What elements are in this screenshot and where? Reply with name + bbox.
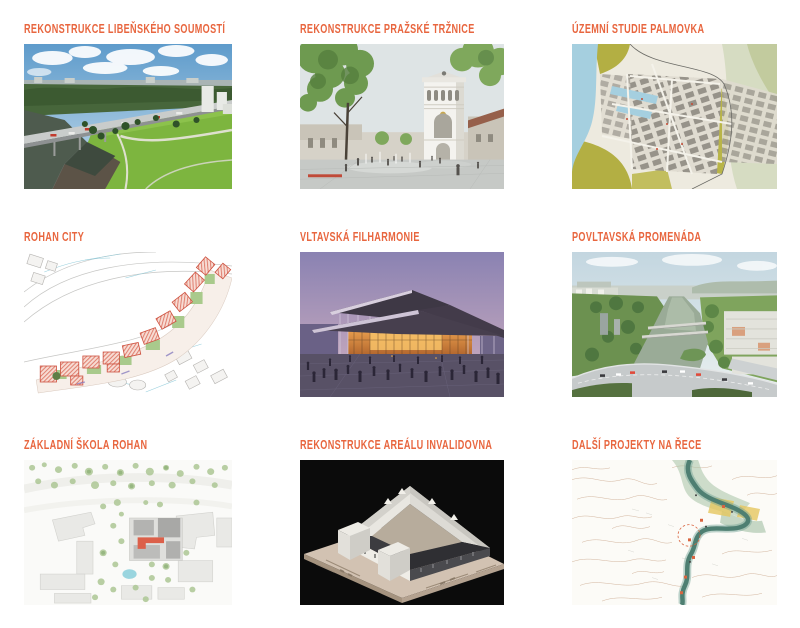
project-title[interactable]: REKONSTRUKCE AREÁLU INVALIDOVNA [300, 437, 443, 452]
river-aerial-photo-graphic [572, 252, 777, 397]
project-image-libenske-soumosti[interactable] [24, 44, 232, 189]
aerial-bridge-photo-graphic [24, 44, 232, 189]
project-card-libenske-soumosti[interactable]: REKONSTRUKCE LIBEŇSKÉHO SOUMOSTÍ [24, 21, 232, 189]
project-image-rohan-city[interactable] [24, 252, 232, 397]
project-card-invalidovna[interactable]: REKONSTRUKCE AREÁLU INVALIDOVNA [300, 437, 504, 605]
project-image-skola-rohan[interactable] [24, 460, 232, 605]
project-image-projekty-na-rece[interactable] [572, 460, 777, 605]
project-card-vltavska-filharmonie[interactable]: VLTAVSKÁ FILHARMONIE [300, 229, 504, 397]
project-card-povltavska-promenada[interactable]: POVLTAVSKÁ PROMENÁDA [572, 229, 777, 397]
school-site-plan-graphic [24, 460, 232, 605]
project-title[interactable]: REKONSTRUKCE LIBEŇSKÉHO SOUMOSTÍ [24, 21, 170, 36]
project-card-prazska-trznice[interactable]: REKONSTRUKCE PRAŽSKÉ TRŽNICE [300, 21, 504, 189]
project-card-rohan-city[interactable]: ROHAN CITY [24, 229, 232, 397]
philharmonic-dusk-render-graphic [300, 252, 504, 397]
invalidovna-model-graphic [300, 460, 504, 605]
rohan-city-masterplan-graphic [24, 252, 232, 397]
project-card-dalsi-projekty-na-rece[interactable]: DALŠÍ PROJEKTY NA ŘECE [572, 437, 777, 605]
project-image-invalidovna[interactable] [300, 460, 504, 605]
palmovka-urban-map-graphic [572, 44, 777, 189]
river-contour-map-graphic [572, 460, 777, 605]
project-title[interactable]: ZÁKLADNÍ ŠKOLA ROHAN [24, 437, 170, 452]
project-title[interactable]: POVLTAVSKÁ PROMENÁDA [572, 229, 716, 244]
project-image-filharmonie[interactable] [300, 252, 504, 397]
project-card-zakladni-skola-rohan[interactable]: ZÁKLADNÍ ŠKOLA ROHAN [24, 437, 232, 605]
market-tower-render-graphic [300, 44, 504, 189]
project-image-palmovka[interactable] [572, 44, 777, 189]
project-image-prazska-trznice[interactable] [300, 44, 504, 189]
project-card-uzemni-studie-palmovka[interactable]: ÚZEMNÍ STUDIE PALMOVKA [572, 21, 777, 189]
project-title[interactable]: REKONSTRUKCE PRAŽSKÉ TRŽNICE [300, 21, 443, 36]
project-title[interactable]: ROHAN CITY [24, 229, 170, 244]
project-title[interactable]: VLTAVSKÁ FILHARMONIE [300, 229, 443, 244]
project-grid: REKONSTRUKCE LIBEŇSKÉHO SOUMOSTÍ [0, 0, 800, 605]
project-image-promenada[interactable] [572, 252, 777, 397]
project-title[interactable]: DALŠÍ PROJEKTY NA ŘECE [572, 437, 716, 452]
project-title[interactable]: ÚZEMNÍ STUDIE PALMOVKA [572, 21, 716, 36]
